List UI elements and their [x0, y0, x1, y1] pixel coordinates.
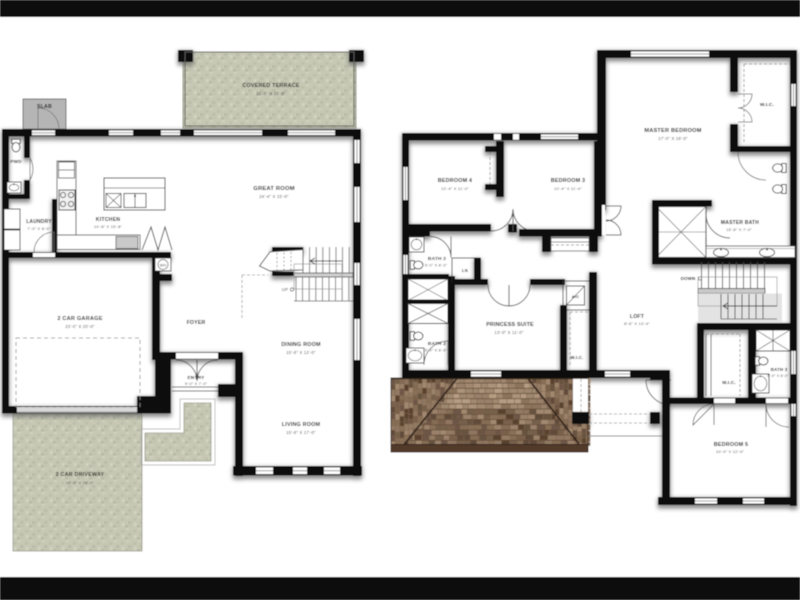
svg-text:MASTER BATH: MASTER BATH — [721, 220, 759, 226]
svg-text:ENTRY: ENTRY — [187, 375, 205, 381]
svg-text:8'-6" X 13'-4": 8'-6" X 13'-4" — [624, 321, 650, 326]
svg-text:7'-0" X 8'-0": 7'-0" X 8'-0" — [27, 226, 51, 231]
svg-text:LAUNDRY: LAUNDRY — [26, 219, 52, 225]
svg-text:18'-0" X 18'-0": 18'-0" X 18'-0" — [66, 480, 95, 485]
svg-text:BEDROOM 3: BEDROOM 3 — [551, 178, 585, 184]
svg-text:COVERED TERRACE: COVERED TERRACE — [242, 83, 299, 89]
svg-text:2 CAR GARAGE: 2 CAR GARAGE — [57, 316, 102, 322]
svg-text:15'-8" X 17'-0": 15'-8" X 17'-0" — [286, 430, 316, 435]
svg-text:9'-0" X 7'-0": 9'-0" X 7'-0" — [185, 382, 208, 386]
svg-text:LOFT: LOFT — [630, 314, 645, 320]
svg-text:BATH 3: BATH 3 — [771, 367, 788, 372]
svg-text:MASTER BEDROOM: MASTER BEDROOM — [644, 128, 701, 134]
svg-text:W.I.C.: W.I.C. — [570, 355, 583, 360]
svg-text:WH: WH — [160, 264, 167, 268]
svg-text:14'-8" X 15'-8": 14'-8" X 15'-8" — [94, 224, 123, 229]
svg-text:13'-0" X 11'-0": 13'-0" X 11'-0" — [494, 330, 523, 335]
svg-text:GREAT ROOM: GREAT ROOM — [253, 186, 295, 192]
svg-text:DOWN: DOWN — [681, 276, 696, 281]
svg-text:10'-0" X 12'-0": 10'-0" X 12'-0" — [716, 449, 745, 454]
svg-text:BEDROOM 4: BEDROOM 4 — [438, 178, 472, 184]
svg-text:LN: LN — [462, 268, 468, 273]
svg-text:2 CAR DRIVEWAY: 2 CAR DRIVEWAY — [56, 472, 105, 478]
svg-text:LIVING ROOM: LIVING ROOM — [282, 422, 321, 428]
svg-text:5'-0" X 8'-0": 5'-0" X 8'-0" — [425, 264, 448, 268]
svg-text:W.I.C.: W.I.C. — [722, 380, 736, 385]
svg-text:10'-4" X 11'-0": 10'-4" X 11'-0" — [441, 186, 469, 191]
svg-text:A/C: A/C — [572, 294, 580, 299]
svg-text:15'-8" X 7'-0": 15'-8" X 7'-0" — [726, 227, 752, 232]
svg-text:17'-0" X 18'-0": 17'-0" X 18'-0" — [658, 136, 688, 141]
svg-text:10'-4" X 11'-4": 10'-4" X 11'-4" — [554, 186, 582, 191]
svg-text:PRINCESS SUITE: PRINCESS SUITE — [486, 322, 534, 328]
svg-text:W.I.C.: W.I.C. — [760, 102, 774, 108]
svg-text:24'-4" X 15'-0": 24'-4" X 15'-0" — [259, 194, 289, 199]
svg-text:BATH 2: BATH 2 — [428, 341, 446, 347]
svg-text:BATH 2: BATH 2 — [428, 256, 446, 262]
svg-text:UP: UP — [282, 287, 288, 292]
svg-text:6'-0" X 8'-0": 6'-0" X 8'-0" — [767, 374, 789, 378]
svg-text:DINING ROOM: DINING ROOM — [281, 342, 321, 348]
svg-text:15'-8" X 12'-0": 15'-8" X 12'-0" — [286, 350, 316, 355]
svg-text:KITCHEN: KITCHEN — [96, 217, 121, 223]
svg-text:5'-0" X 8'-6": 5'-0" X 8'-6" — [425, 349, 448, 353]
svg-text:BEDROOM 5: BEDROOM 5 — [714, 442, 748, 448]
svg-text:PWD: PWD — [10, 159, 22, 164]
svg-text:FOYER: FOYER — [187, 320, 206, 326]
svg-text:21'-0" X 10'-0": 21'-0" X 10'-0" — [256, 91, 286, 96]
svg-text:23'-0" X 20'-0": 23'-0" X 20'-0" — [65, 324, 95, 329]
